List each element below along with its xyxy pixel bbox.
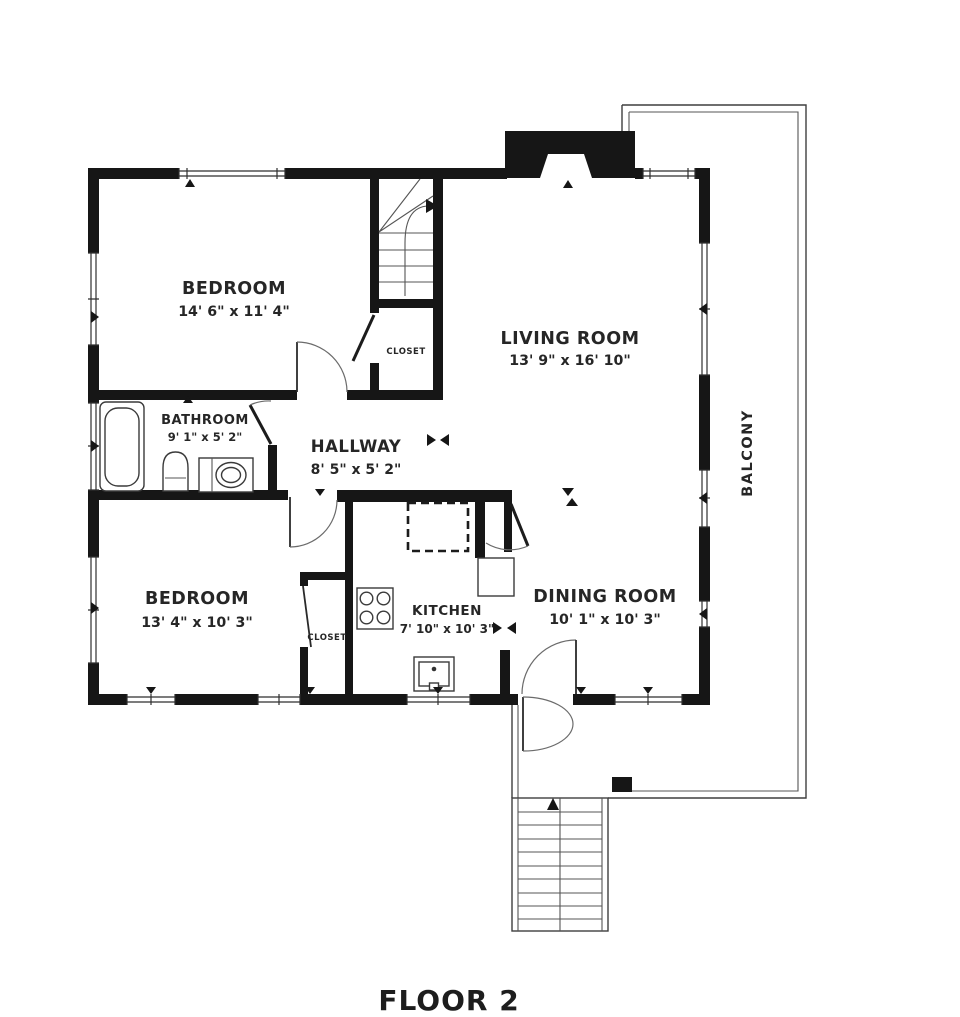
kitchen-dimensions: 7' 10" x 10' 3" [400,622,494,636]
bathroom-door [250,401,271,444]
bedroom-1-label: BEDROOM [182,279,286,299]
toilet [199,458,253,492]
bedroom-2-label-group: BEDROOM 13' 4" x 10' 3" [141,589,253,631]
refrigerator [408,503,468,551]
wall-segment [635,168,643,179]
interior-stairs [379,179,438,296]
wall-segment [433,179,443,395]
bathroom-label-group: BATHROOM 9' 1" x 5' 2" [161,413,249,444]
interior-stairs-winders [379,179,433,232]
wall-segment [500,650,510,694]
floor-plan-drawing: BEDROOM 14' 6" x 11' 4" LIVING ROOM 13' … [0,0,960,1017]
floor-title: FLOOR 2 [378,984,519,1017]
marker-icon [643,687,653,694]
wall-segment [268,445,277,490]
opening-arrow-icon [566,498,578,506]
living-room-label: LIVING ROOM [501,329,640,349]
wall-segment [699,627,710,705]
hallway-dimensions: 8' 5" x 5' 2" [311,462,402,478]
bedroom-2-door [290,497,337,547]
window [407,694,470,705]
window [127,694,175,705]
wall-segment [573,694,615,705]
window [88,253,99,345]
wall-segment [699,375,710,470]
marker-icon [185,179,195,187]
kitchen-counter [478,558,514,596]
window [179,168,285,179]
balcony-label: BALCONY [740,409,756,497]
bedroom-1-label-group: BEDROOM 14' 6" x 11' 4" [178,279,290,320]
opening-arrow-icon [507,622,516,634]
wall-segment [370,179,379,313]
wall-segment [699,168,710,243]
wall-segment [345,500,353,694]
wall-segment [300,647,308,694]
kitchen-sink [414,657,454,691]
marker-icon [576,687,586,694]
wall-segment [175,694,258,705]
kitchen-fixtures [357,503,514,691]
opening-arrow-icon [440,434,449,446]
dining-exterior-door [522,640,576,751]
wall-segment [347,390,443,400]
wall-segment [88,490,99,557]
bathtub [100,402,144,491]
kitchen-label-group: KITCHEN 7' 10" x 10' 3" [400,603,494,636]
fireplace [505,131,635,178]
wall-segment [699,527,710,601]
wall-segment [88,694,127,705]
wall-segment [88,168,99,253]
living-room-dimensions: 13' 9" x 16' 10" [509,353,630,369]
kitchen-label: KITCHEN [412,603,482,619]
marker-icon [315,489,325,496]
opening-arrow-icon [562,488,574,496]
hallway-label-group: HALLWAY 8' 5" x 5' 2" [311,437,402,478]
wall-segment [504,502,512,552]
bedroom-2-label: BEDROOM [145,589,249,609]
opening-arrow-icon [493,622,502,634]
marker-icon [563,180,573,188]
bathroom-label: BATHROOM [161,413,249,428]
bathroom-dimensions: 9' 1" x 5' 2" [168,430,242,444]
dining-room-label-group: DINING ROOM 10' 1" x 10' 3" [533,587,676,628]
wall-segment [88,390,297,400]
hall-closet-door [353,315,374,361]
exterior-stairs [512,777,632,931]
stove [357,588,393,629]
wall-segment [470,694,518,705]
marker-icon [146,687,156,694]
bedroom-2-closet-label: CLOSET [307,633,346,643]
doors [250,315,576,751]
wall-segment [300,572,308,586]
bedroom-1-door [297,342,347,392]
wall-segment [88,168,179,179]
bedroom-2-dimensions: 13' 4" x 10' 3" [141,615,253,631]
window [615,694,682,705]
dining-room-label: DINING ROOM [533,587,676,607]
fireplace-firebox [540,154,592,178]
opening-arrow-icon [427,434,436,446]
wall-segment [475,502,485,558]
deck-post [612,777,632,792]
wall-segment [370,299,443,308]
living-room-label-group: LIVING ROOM 13' 9" x 16' 10" [501,329,640,369]
exterior-stairs-up-arrow-icon [547,798,559,810]
hall-closet-label: CLOSET [386,347,425,357]
wall-segment [300,694,407,705]
interior-stairs-treads [379,233,433,282]
bedroom-1-dimensions: 14' 6" x 11' 4" [178,304,290,320]
floor-plan-page: BEDROOM 14' 6" x 11' 4" LIVING ROOM 13' … [0,0,960,1017]
dining-room-dimensions: 10' 1" x 10' 3" [549,612,661,628]
pedestal-sink [163,452,188,491]
wall-segment [285,168,507,179]
hallway-label: HALLWAY [311,437,402,456]
wall-segment [337,490,512,502]
room-labels: BEDROOM 14' 6" x 11' 4" LIVING ROOM 13' … [141,279,756,1017]
window [643,168,695,179]
window [258,694,300,705]
